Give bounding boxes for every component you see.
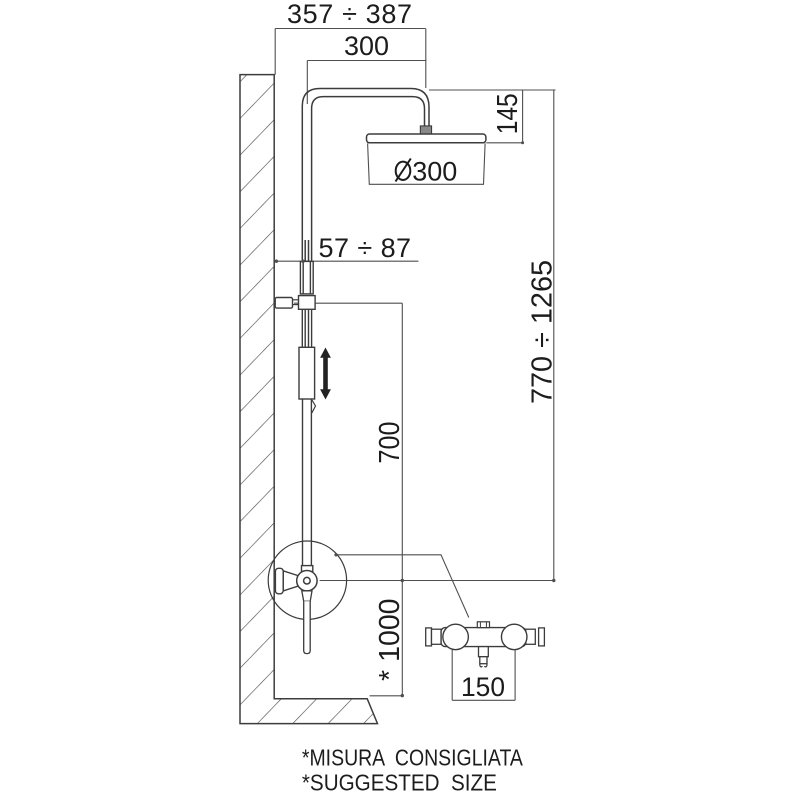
svg-text:357 ÷ 387: 357 ÷ 387 (287, 0, 412, 29)
svg-text:300: 300 (412, 157, 457, 187)
svg-text:700: 700 (374, 422, 406, 464)
svg-text:770 ÷ 1265: 770 ÷ 1265 (527, 260, 559, 404)
svg-text:150: 150 (461, 672, 505, 702)
svg-text:145: 145 (492, 93, 524, 134)
svg-text:300: 300 (344, 31, 389, 61)
svg-text:*SUGGESTED SIZE: *SUGGESTED SIZE (302, 769, 497, 795)
svg-text:57 ÷ 87: 57 ÷ 87 (319, 233, 412, 263)
svg-text:*MISURA CONSIGLIATA: *MISURA CONSIGLIATA (302, 744, 523, 770)
svg-text:* 1000: * 1000 (374, 598, 406, 681)
